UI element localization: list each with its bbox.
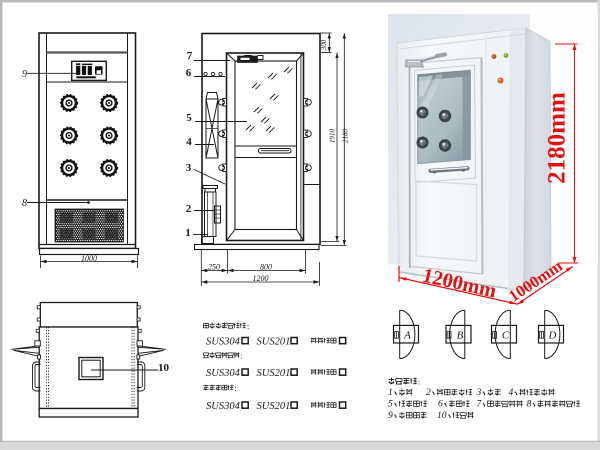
svg-text:8: 8 bbox=[22, 198, 27, 209]
svg-text:9: 9 bbox=[388, 411, 393, 421]
svg-text:2180: 2180 bbox=[342, 129, 350, 144]
svg-text:10: 10 bbox=[158, 362, 170, 374]
svg-text:3: 3 bbox=[476, 388, 482, 398]
svg-text:SUS201: SUS201 bbox=[257, 337, 291, 348]
svg-text:6: 6 bbox=[186, 67, 192, 79]
svg-text:4: 4 bbox=[509, 388, 514, 398]
svg-text:A: A bbox=[403, 330, 411, 342]
svg-text:1: 1 bbox=[185, 227, 191, 239]
svg-text:1000: 1000 bbox=[81, 254, 97, 263]
svg-text:C: C bbox=[502, 330, 510, 342]
svg-text:5: 5 bbox=[388, 400, 393, 410]
svg-text:B: B bbox=[457, 330, 464, 342]
svg-text:SUS304: SUS304 bbox=[206, 368, 241, 379]
svg-text::: : bbox=[241, 352, 243, 361]
svg-text:6: 6 bbox=[438, 400, 443, 410]
svg-text:9: 9 bbox=[22, 69, 27, 80]
svg-text:SUS201: SUS201 bbox=[257, 368, 291, 379]
svg-text:2180mm: 2180mm bbox=[544, 92, 571, 184]
svg-text::: : bbox=[418, 378, 420, 387]
svg-text:800: 800 bbox=[260, 263, 272, 272]
svg-text::: : bbox=[235, 384, 237, 393]
svg-text:3: 3 bbox=[186, 162, 192, 174]
svg-text:1200: 1200 bbox=[253, 274, 269, 283]
svg-text:7: 7 bbox=[187, 50, 193, 62]
svg-text::: : bbox=[247, 322, 249, 331]
svg-text:SUS304: SUS304 bbox=[206, 401, 241, 412]
svg-text:2: 2 bbox=[186, 203, 192, 215]
svg-text:300: 300 bbox=[320, 39, 328, 51]
svg-text:1910: 1910 bbox=[329, 129, 337, 144]
svg-text:250: 250 bbox=[208, 263, 220, 272]
svg-text:5: 5 bbox=[186, 112, 192, 124]
svg-text:4: 4 bbox=[186, 136, 192, 148]
svg-text:1: 1 bbox=[388, 388, 393, 398]
svg-text:2: 2 bbox=[426, 388, 431, 398]
svg-text:SUS201: SUS201 bbox=[257, 401, 291, 412]
svg-text:SUS304: SUS304 bbox=[206, 337, 241, 348]
svg-text:8: 8 bbox=[527, 400, 532, 410]
svg-text:10: 10 bbox=[437, 411, 447, 421]
svg-text:D: D bbox=[548, 330, 557, 342]
